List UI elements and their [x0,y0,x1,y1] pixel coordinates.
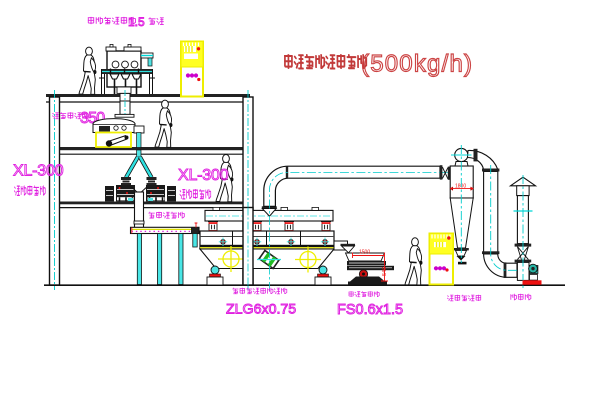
svg-text:(500kg/h): (500kg/h) [361,51,473,78]
svg-text:XL-300: XL-300 [13,163,64,180]
svg-text:1500: 1500 [359,250,370,256]
svg-text:540: 540 [382,267,388,276]
svg-text:FS0.6x1.5: FS0.6x1.5 [337,302,403,318]
svg-text:1.5: 1.5 [128,15,145,29]
svg-text:1800: 1800 [455,184,466,190]
svg-text:XL-300: XL-300 [178,167,229,184]
svg-text:ZLG6x0.75: ZLG6x0.75 [226,302,296,318]
